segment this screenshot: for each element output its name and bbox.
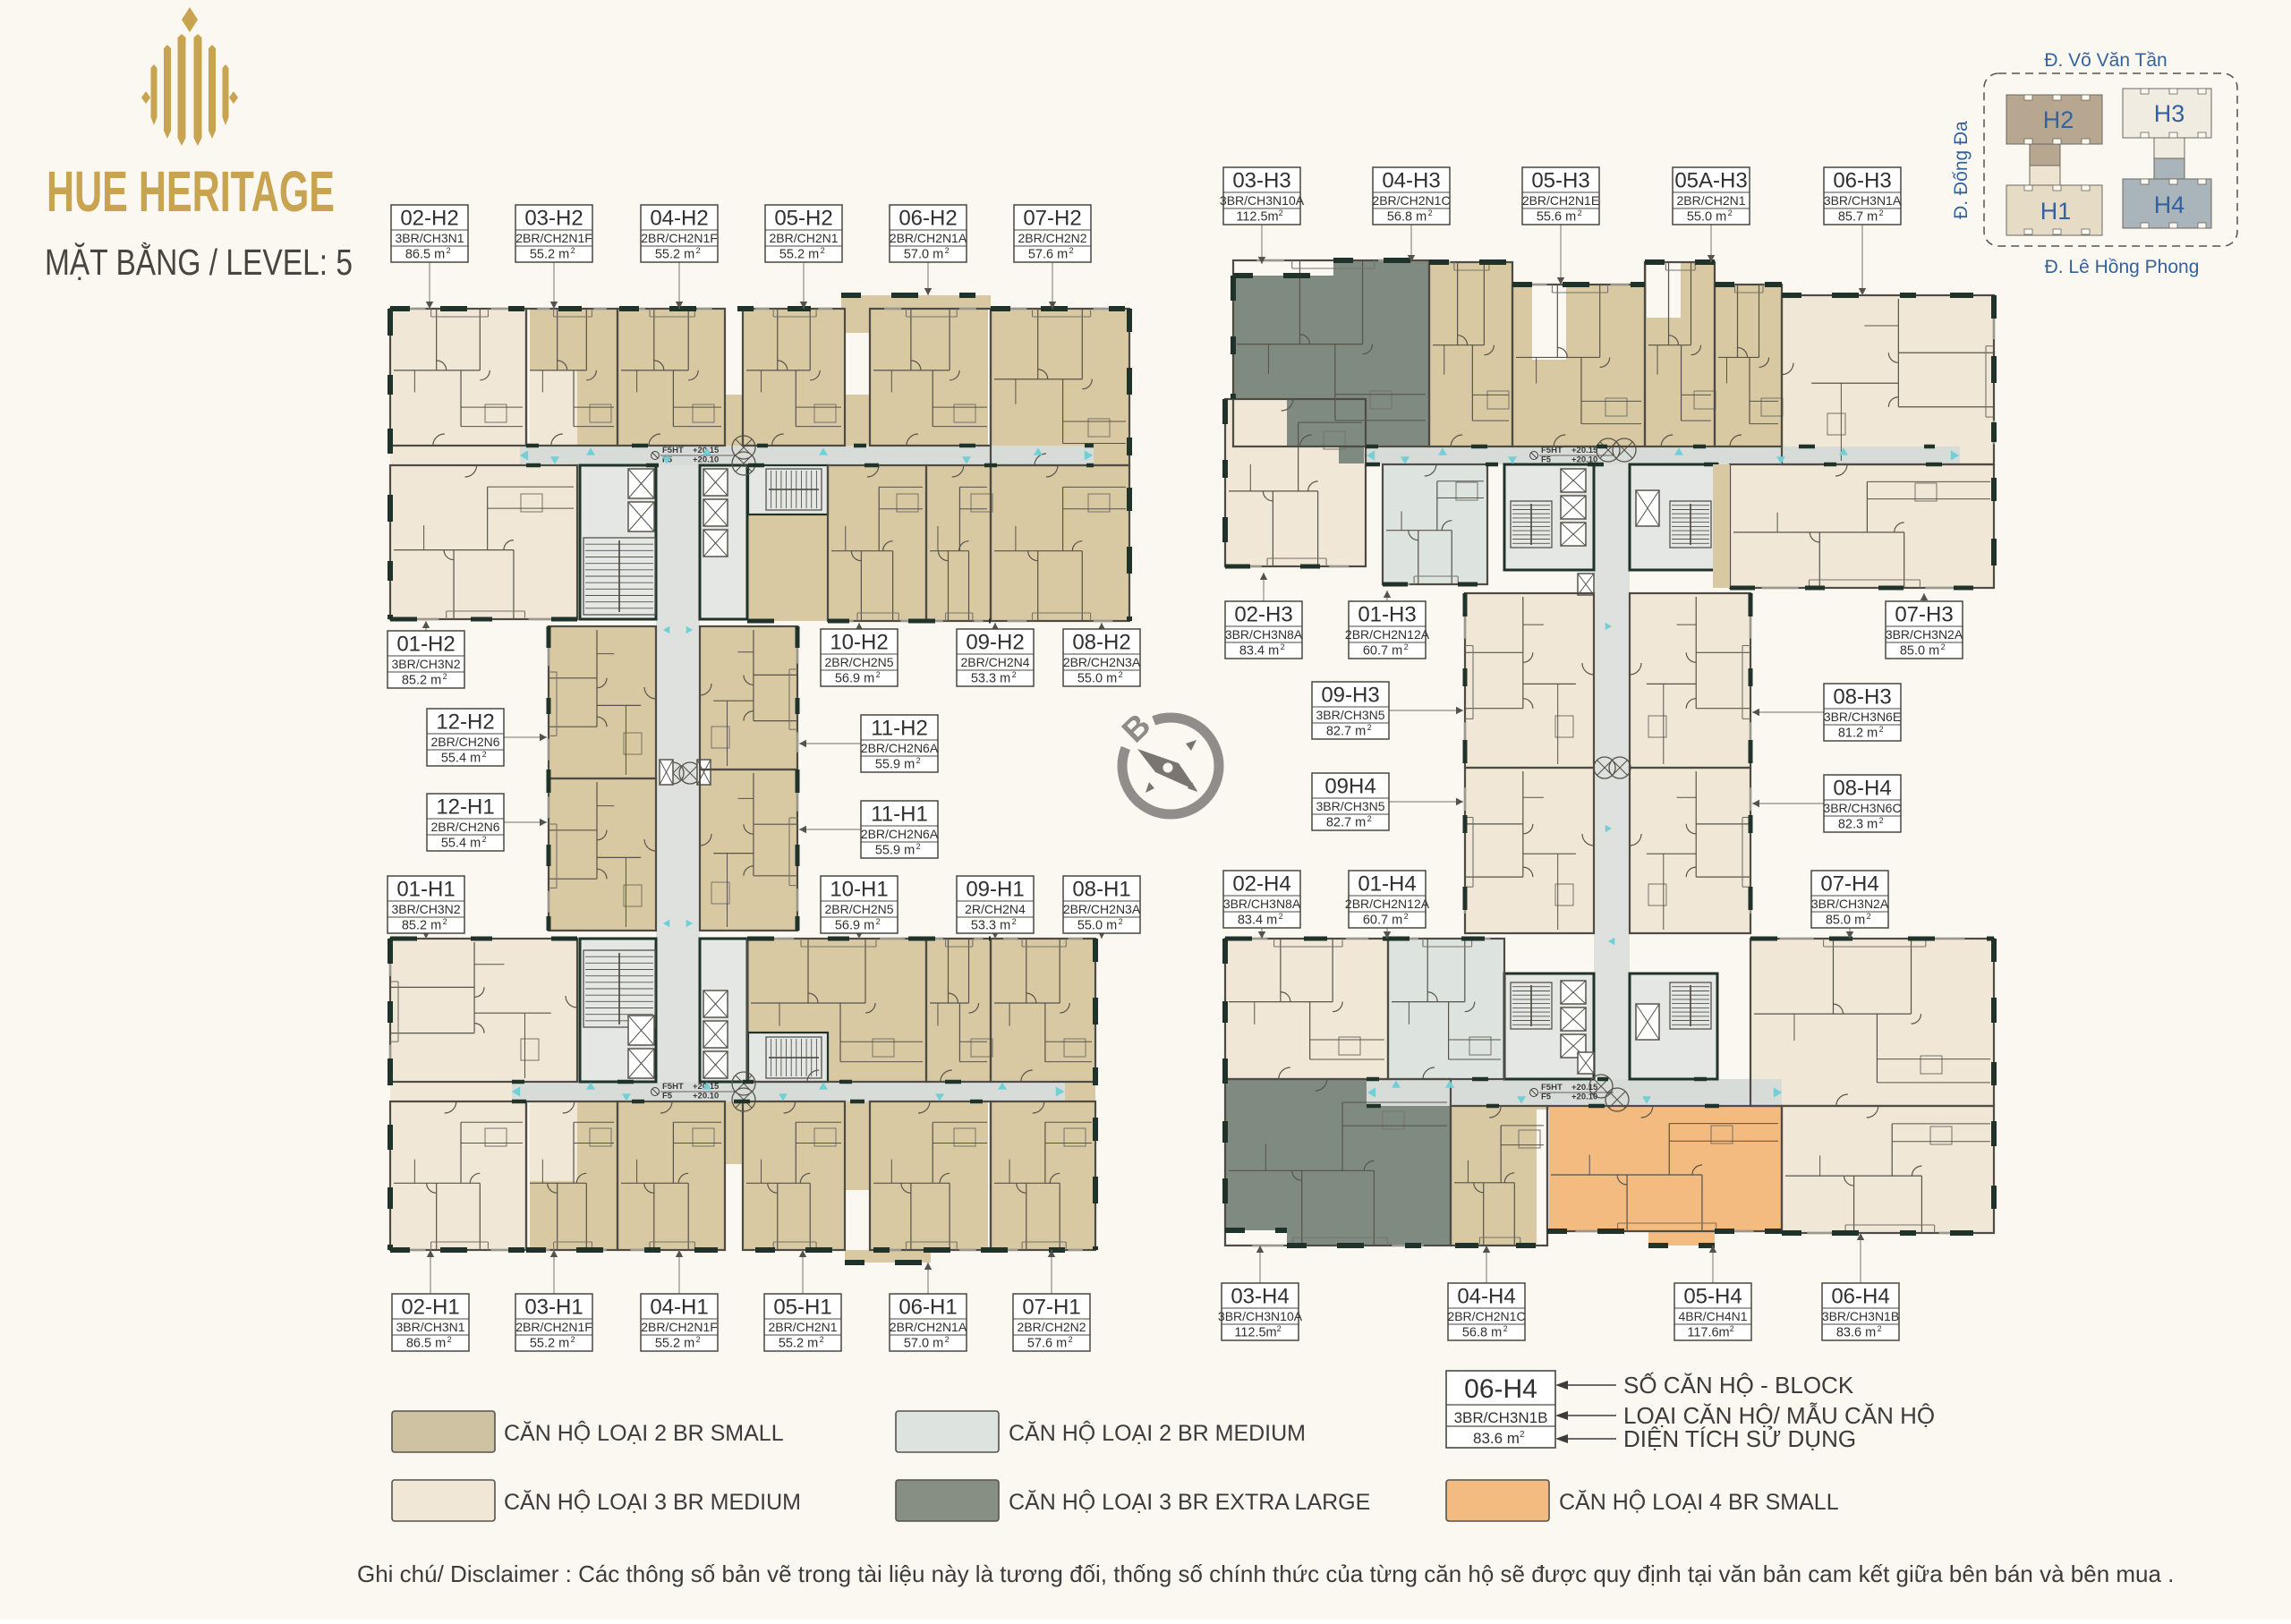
svg-text:3BR/CH3N8A: 3BR/CH3N8A <box>1223 897 1301 911</box>
svg-text:12-H1: 12-H1 <box>436 795 494 820</box>
svg-text:83.6 m: 83.6 m <box>1473 1430 1520 1447</box>
svg-text:2BR/CH2N3A: 2BR/CH2N3A <box>1063 902 1141 916</box>
svg-text:60.7 m: 60.7 m <box>1363 914 1402 928</box>
svg-text:01-H2: 01-H2 <box>396 633 455 657</box>
svg-text:56.8 m: 56.8 m <box>1387 210 1427 225</box>
svg-text:+20.15: +20.15 <box>1571 446 1598 455</box>
svg-text:2: 2 <box>1069 246 1074 255</box>
svg-text:2: 2 <box>916 842 921 851</box>
svg-text:3BR/CH3N2A: 3BR/CH3N2A <box>1811 897 1889 911</box>
svg-text:08-H4: 08-H4 <box>1833 777 1891 801</box>
svg-text:05-H4: 05-H4 <box>1683 1285 1742 1309</box>
svg-text:2: 2 <box>1728 208 1733 217</box>
svg-text:2: 2 <box>482 750 487 759</box>
svg-text:55.4 m: 55.4 m <box>441 752 481 766</box>
svg-text:2BR/CH2N3A: 2BR/CH2N3A <box>1063 655 1141 669</box>
svg-text:04-H1: 04-H1 <box>650 1296 708 1320</box>
svg-text:08-H2: 08-H2 <box>1072 631 1130 655</box>
svg-text:56.8 m: 56.8 m <box>1462 1326 1502 1340</box>
svg-text:2BR/CH2N1: 2BR/CH2N1 <box>769 231 838 245</box>
svg-text:3BR/CH3N2: 3BR/CH3N2 <box>391 902 460 916</box>
svg-text:55.9 m: 55.9 m <box>875 844 915 858</box>
svg-text:2: 2 <box>1578 208 1582 217</box>
svg-text:DIỆN TÍCH SỬ DỤNG: DIỆN TÍCH SỬ DỤNG <box>1623 1424 1856 1452</box>
svg-text:3BR/CH3N6E: 3BR/CH3N6E <box>1824 710 1901 724</box>
svg-text:4BR/CH4N1: 4BR/CH4N1 <box>1678 1309 1747 1323</box>
svg-text:2: 2 <box>1879 725 1884 734</box>
svg-text:2: 2 <box>447 1335 452 1344</box>
svg-text:53.3 m: 53.3 m <box>971 672 1010 686</box>
svg-text:2: 2 <box>443 672 447 681</box>
svg-text:10-H2: 10-H2 <box>830 631 888 655</box>
svg-text:3BR/CH3N1B: 3BR/CH3N1B <box>1454 1409 1548 1426</box>
svg-text:09-H3: 09-H3 <box>1321 684 1379 708</box>
svg-text:112.5m: 112.5m <box>1236 210 1278 225</box>
svg-text:CĂN HỘ LOẠI 3 BR EXTRA LARGE: CĂN HỘ LOẠI 3 BR EXTRA LARGE <box>1009 1489 1370 1515</box>
svg-text:2: 2 <box>1367 814 1372 823</box>
svg-text:F5: F5 <box>662 1092 673 1101</box>
svg-text:05A-H3: 05A-H3 <box>1674 169 1747 193</box>
svg-text:03-H4: 03-H4 <box>1231 1285 1289 1309</box>
svg-text:55.2 m: 55.2 m <box>779 248 819 262</box>
svg-text:53.3 m: 53.3 m <box>971 919 1010 933</box>
svg-text:3BR/CH3N1A: 3BR/CH3N1A <box>1824 193 1902 208</box>
svg-text:3BR/CH3N1: 3BR/CH3N1 <box>395 231 464 245</box>
svg-text:F5HT: F5HT <box>1541 1083 1563 1093</box>
svg-text:2: 2 <box>1277 1324 1282 1333</box>
svg-text:55.6 m: 55.6 m <box>1537 210 1576 225</box>
svg-text:06-H4: 06-H4 <box>1831 1285 1889 1309</box>
svg-text:2: 2 <box>482 835 487 844</box>
svg-text:2BR/CH2N2: 2BR/CH2N2 <box>1018 231 1086 245</box>
svg-text:2: 2 <box>1879 208 1884 217</box>
svg-text:2BR/CH2N1F: 2BR/CH2N1F <box>641 231 718 245</box>
svg-text:F5HT: F5HT <box>1541 446 1563 455</box>
svg-text:12-H2: 12-H2 <box>436 710 494 735</box>
svg-text:2: 2 <box>1367 723 1372 732</box>
svg-text:57.0 m: 57.0 m <box>904 248 943 262</box>
svg-text:81.2 m: 81.2 m <box>1838 727 1878 741</box>
svg-text:83.4 m: 83.4 m <box>1238 914 1277 928</box>
svg-text:117.6m: 117.6m <box>1687 1326 1729 1340</box>
svg-text:82.7 m: 82.7 m <box>1326 816 1366 830</box>
svg-text:2BR/CH2N1F: 2BR/CH2N1F <box>641 1320 718 1334</box>
svg-text:+20.15: +20.15 <box>1571 1083 1598 1093</box>
svg-text:55.0 m: 55.0 m <box>1077 672 1117 686</box>
svg-text:85.2 m: 85.2 m <box>402 674 441 688</box>
svg-text:85.2 m: 85.2 m <box>402 919 441 933</box>
svg-text:H4: H4 <box>2154 191 2185 218</box>
svg-text:2: 2 <box>1520 1430 1525 1440</box>
svg-text:2: 2 <box>696 246 701 255</box>
svg-text:55.2 m: 55.2 m <box>655 248 694 262</box>
svg-text:2BR/CH2N4: 2BR/CH2N4 <box>960 655 1029 669</box>
svg-text:2: 2 <box>1119 670 1123 679</box>
svg-text:01-H1: 01-H1 <box>396 878 455 902</box>
svg-text:2: 2 <box>876 670 881 679</box>
svg-text:2: 2 <box>1069 1335 1073 1344</box>
svg-text:2BR/CH2N5: 2BR/CH2N5 <box>824 655 893 669</box>
svg-text:02-H4: 02-H4 <box>1232 872 1290 897</box>
svg-text:2BR/CH2N1A: 2BR/CH2N1A <box>890 1320 967 1334</box>
svg-text:2BR/CH2N1: 2BR/CH2N1 <box>1676 193 1745 208</box>
svg-text:08-H1: 08-H1 <box>1072 878 1130 902</box>
svg-text:2: 2 <box>1404 912 1409 921</box>
svg-text:08-H3: 08-H3 <box>1833 685 1891 710</box>
svg-text:10-H1: 10-H1 <box>830 878 888 902</box>
svg-text:H3: H3 <box>2154 100 2185 127</box>
svg-text:Đ. Lê Hồng Phong: Đ. Lê Hồng Phong <box>2045 257 2200 277</box>
svg-text:2: 2 <box>916 756 921 765</box>
svg-text:01-H3: 01-H3 <box>1358 603 1416 627</box>
svg-text:2: 2 <box>1867 912 1871 921</box>
svg-text:83.4 m: 83.4 m <box>1239 644 1279 659</box>
svg-text:2: 2 <box>571 246 575 255</box>
svg-text:2: 2 <box>1279 912 1283 921</box>
svg-text:04-H4: 04-H4 <box>1457 1285 1515 1309</box>
svg-text:04-H2: 04-H2 <box>650 207 708 231</box>
svg-text:07-H1: 07-H1 <box>1022 1296 1080 1320</box>
svg-text:05-H3: 05-H3 <box>1531 169 1589 193</box>
svg-text:+20.10: +20.10 <box>693 1092 719 1101</box>
svg-text:2BR/CH2N6: 2BR/CH2N6 <box>430 820 499 834</box>
svg-text:F5HT: F5HT <box>662 446 684 455</box>
svg-text:2BR/CH2N6A: 2BR/CH2N6A <box>861 741 939 755</box>
svg-text:06-H2: 06-H2 <box>899 207 957 231</box>
svg-text:2R/CH2N4: 2R/CH2N4 <box>965 902 1026 916</box>
svg-text:06-H1: 06-H1 <box>899 1296 957 1320</box>
svg-text:2: 2 <box>1730 1324 1734 1333</box>
svg-text:02-H1: 02-H1 <box>401 1296 459 1320</box>
svg-text:85.0 m: 85.0 m <box>1826 914 1865 928</box>
svg-text:09H4: 09H4 <box>1324 775 1375 799</box>
svg-text:2: 2 <box>1279 208 1283 217</box>
svg-text:57.6 m: 57.6 m <box>1027 1337 1067 1351</box>
svg-text:55.9 m: 55.9 m <box>875 758 915 772</box>
svg-text:55.0 m: 55.0 m <box>1687 210 1726 225</box>
svg-text:57.6 m: 57.6 m <box>1028 248 1068 262</box>
svg-text:09-H2: 09-H2 <box>966 631 1024 655</box>
svg-text:2BR/CH2N1A: 2BR/CH2N1A <box>890 231 967 245</box>
svg-text:3BR/CH3N5: 3BR/CH3N5 <box>1316 708 1384 722</box>
svg-text:3BR/CH3N1: 3BR/CH3N1 <box>396 1320 464 1334</box>
svg-text:2: 2 <box>447 246 451 255</box>
svg-text:60.7 m: 60.7 m <box>1363 644 1402 659</box>
svg-text:02-H2: 02-H2 <box>400 207 458 231</box>
svg-text:06-H3: 06-H3 <box>1833 169 1891 193</box>
svg-text:F5: F5 <box>1541 455 1552 465</box>
svg-text:+20.10: +20.10 <box>1571 1093 1597 1102</box>
svg-text:MẶT BẰNG / LEVEL: 5: MẶT BẰNG / LEVEL: 5 <box>45 242 353 283</box>
svg-text:55.4 m: 55.4 m <box>441 837 481 851</box>
svg-text:2: 2 <box>876 917 881 926</box>
svg-text:55.2 m: 55.2 m <box>779 1337 818 1351</box>
svg-text:2: 2 <box>945 1335 950 1344</box>
svg-text:2BR/CH2N1F: 2BR/CH2N1F <box>515 1320 592 1334</box>
svg-text:2: 2 <box>1119 917 1123 926</box>
svg-text:+20.10: +20.10 <box>1571 455 1597 465</box>
svg-text:3BR/CH3N6C: 3BR/CH3N6C <box>1823 801 1901 815</box>
svg-text:02-H3: 02-H3 <box>1234 603 1292 627</box>
svg-text:2BR/CH2N2: 2BR/CH2N2 <box>1017 1320 1086 1334</box>
svg-text:CĂN HỘ LOẠI 3 BR MEDIUM: CĂN HỘ LOẠI 3 BR MEDIUM <box>504 1489 801 1515</box>
svg-text:2: 2 <box>1941 642 1946 651</box>
svg-text:F5: F5 <box>1541 1093 1552 1102</box>
svg-text:CĂN HỘ LOẠI 4 BR SMALL: CĂN HỘ LOẠI 4 BR SMALL <box>1559 1489 1839 1515</box>
svg-text:3BR/CH3N2: 3BR/CH3N2 <box>391 657 460 671</box>
svg-text:CĂN HỘ LOẠI 2 BR MEDIUM: CĂN HỘ LOẠI 2 BR MEDIUM <box>1009 1420 1306 1446</box>
svg-text:03-H2: 03-H2 <box>524 207 583 231</box>
svg-text:07-H4: 07-H4 <box>1820 872 1878 897</box>
svg-text:03-H3: 03-H3 <box>1232 169 1290 193</box>
svg-text:3BR/CH3N1B: 3BR/CH3N1B <box>1822 1309 1899 1323</box>
svg-text:2BR/CH2N1F: 2BR/CH2N1F <box>515 231 592 245</box>
svg-text:06-H4: 06-H4 <box>1464 1374 1537 1404</box>
svg-text:2BR/CH2N6: 2BR/CH2N6 <box>430 735 499 749</box>
svg-text:55.2 m: 55.2 m <box>530 248 569 262</box>
svg-text:2: 2 <box>1879 816 1884 825</box>
svg-text:2: 2 <box>1503 1324 1508 1333</box>
svg-text:H2: H2 <box>2043 106 2074 133</box>
svg-text:86.5 m: 86.5 m <box>405 248 445 262</box>
svg-text:01-H4: 01-H4 <box>1358 872 1416 897</box>
svg-text:86.5 m: 86.5 m <box>406 1337 446 1351</box>
svg-text:55.2 m: 55.2 m <box>530 1337 569 1351</box>
svg-text:05-H2: 05-H2 <box>774 207 832 231</box>
svg-text:11-H1: 11-H1 <box>871 803 928 827</box>
svg-text:2BR/CH2N6A: 2BR/CH2N6A <box>861 827 939 841</box>
svg-text:2: 2 <box>1878 1324 1882 1333</box>
svg-text:2: 2 <box>1012 670 1017 679</box>
svg-text:07-H2: 07-H2 <box>1023 207 1081 231</box>
svg-text:2BR/CH2N1C: 2BR/CH2N1C <box>1447 1309 1525 1323</box>
svg-text:56.9 m: 56.9 m <box>835 919 874 933</box>
svg-text:2: 2 <box>571 1335 575 1344</box>
svg-text:3BR/CH3N2A: 3BR/CH3N2A <box>1886 627 1963 642</box>
svg-text:3BR/CH3N5: 3BR/CH3N5 <box>1316 799 1384 813</box>
svg-text:2: 2 <box>1012 917 1017 926</box>
svg-text:57.0 m: 57.0 m <box>904 1337 943 1351</box>
svg-text:82.7 m: 82.7 m <box>1326 725 1366 739</box>
svg-text:05-H1: 05-H1 <box>773 1296 831 1320</box>
svg-text:09-H1: 09-H1 <box>966 878 1024 902</box>
svg-text:2: 2 <box>1404 642 1409 651</box>
svg-text:CĂN HỘ LOẠI 2 BR SMALL: CĂN HỘ LOẠI 2 BR SMALL <box>504 1420 784 1446</box>
svg-text:85.7 m: 85.7 m <box>1838 210 1878 225</box>
svg-text:04-H3: 04-H3 <box>1382 169 1440 193</box>
svg-text:2BR/CH2N12A: 2BR/CH2N12A <box>1345 897 1430 911</box>
svg-text:83.6 m: 83.6 m <box>1836 1326 1876 1340</box>
svg-text:HUE HERITAGE: HUE HERITAGE <box>47 159 335 224</box>
svg-text:2: 2 <box>820 1335 824 1344</box>
svg-text:2: 2 <box>696 1335 701 1344</box>
svg-text:56.9 m: 56.9 m <box>835 672 874 686</box>
svg-text:11-H2: 11-H2 <box>871 717 928 741</box>
svg-text:112.5m: 112.5m <box>1234 1326 1276 1340</box>
svg-text:2: 2 <box>1428 208 1433 217</box>
svg-text:Đ. Đống Đa: Đ. Đống Đa <box>1951 121 1972 219</box>
svg-text:Đ. Võ Văn Tần: Đ. Võ Văn Tần <box>2044 50 2167 71</box>
svg-text:82.3 m: 82.3 m <box>1838 818 1878 832</box>
svg-text:2BR/CH2N1: 2BR/CH2N1 <box>768 1320 837 1334</box>
svg-text:3BR/CH3N10A: 3BR/CH3N10A <box>1218 1309 1303 1323</box>
svg-text:3BR/CH3N10A: 3BR/CH3N10A <box>1220 193 1305 208</box>
svg-text:2BR/CH2N12A: 2BR/CH2N12A <box>1345 627 1430 642</box>
svg-text:SỐ CĂN HỘ - BLOCK: SỐ CĂN HỘ - BLOCK <box>1623 1372 1854 1399</box>
svg-text:07-H3: 07-H3 <box>1895 603 1953 627</box>
svg-text:Ghi chú/ Disclaimer : Các thôn: Ghi chú/ Disclaimer : Các thông số bản v… <box>357 1560 2174 1587</box>
svg-text:H1: H1 <box>2040 198 2072 225</box>
svg-text:2BR/CH2N1E: 2BR/CH2N1E <box>1522 193 1599 208</box>
svg-text:2: 2 <box>945 246 950 255</box>
svg-text:2: 2 <box>821 246 825 255</box>
svg-text:+20.10: +20.10 <box>693 455 719 465</box>
svg-text:3BR/CH3N8A: 3BR/CH3N8A <box>1225 627 1303 642</box>
svg-text:2BR/CH2N1C: 2BR/CH2N1C <box>1372 193 1450 208</box>
svg-text:F5HT: F5HT <box>662 1082 684 1092</box>
svg-text:03-H1: 03-H1 <box>524 1296 583 1320</box>
svg-text:85.0 m: 85.0 m <box>1900 644 1939 659</box>
svg-text:2: 2 <box>1281 642 1285 651</box>
svg-text:2: 2 <box>443 917 447 926</box>
svg-text:2BR/CH2N5: 2BR/CH2N5 <box>824 902 893 916</box>
svg-text:55.0 m: 55.0 m <box>1077 919 1117 933</box>
svg-text:55.2 m: 55.2 m <box>655 1337 694 1351</box>
